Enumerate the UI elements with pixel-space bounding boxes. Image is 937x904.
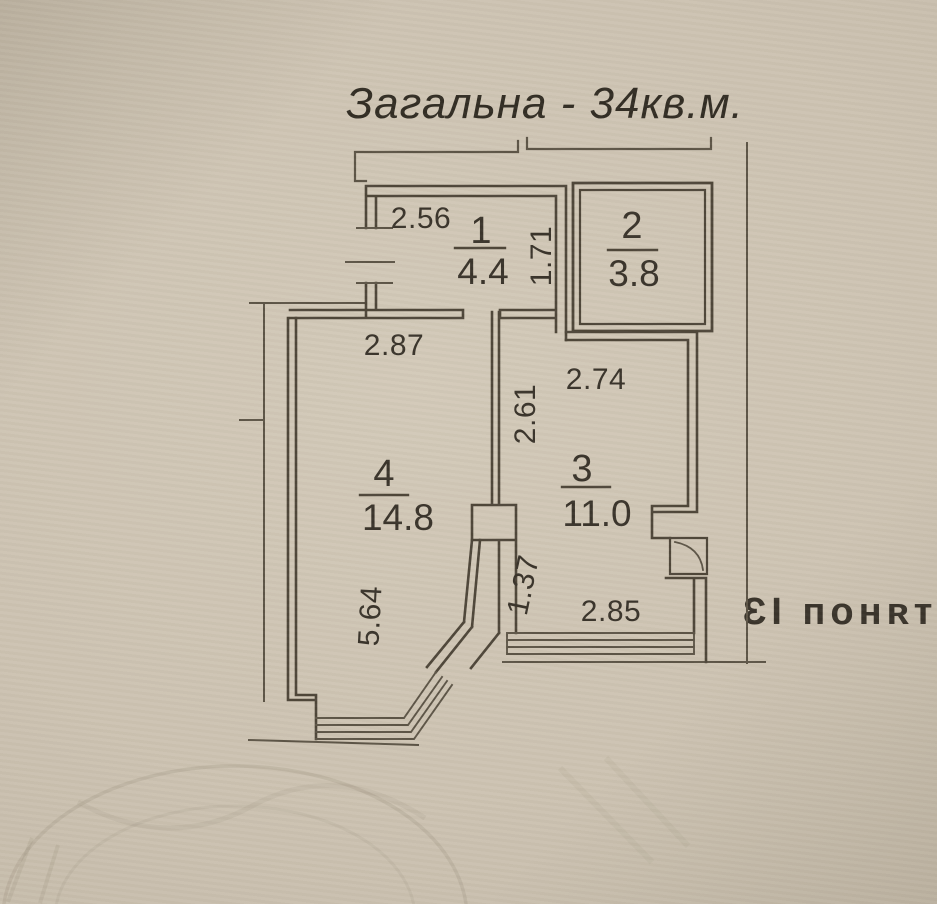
room-3-window — [507, 633, 694, 654]
room-2-number: 2 — [621, 205, 642, 247]
entrance-door-marks — [346, 228, 394, 283]
room-3-number: 3 — [571, 448, 592, 490]
dim-hall-width: 2.56 — [391, 202, 451, 235]
dim-living-depth: 5.64 — [352, 585, 388, 647]
dim-bedroom-width: 2.74 — [566, 363, 626, 396]
room-4-bay-window — [316, 672, 452, 739]
room-3-area: 11.0 — [562, 493, 631, 534]
dim-bedroom-wall-lower: 1.37 — [501, 552, 546, 618]
vent-duct-symbol — [670, 538, 707, 574]
dim-living-width: 2.87 — [364, 329, 424, 362]
show-through-text: стяноп ІЗ — [738, 591, 937, 633]
room-1-area: 4.4 — [457, 251, 508, 292]
svg-text:стяноп ІЗ: стяноп ІЗ — [738, 591, 937, 633]
dim-bedroom-wall-upper: 2.61 — [509, 384, 542, 444]
stamp-watermark — [3, 758, 688, 904]
plan-title: Загальна - 34кв.м. — [346, 79, 744, 128]
room-4-area: 14.8 — [362, 497, 434, 538]
floor-plan-svg: стяноп ІЗ Загальна - 34кв.м. 2.56 1 4.4 — [0, 0, 937, 904]
dim-hall-depth: 1.71 — [525, 226, 558, 286]
dimension-lines — [355, 138, 711, 181]
room-4-number: 4 — [373, 453, 394, 495]
room-1-number: 1 — [470, 210, 491, 252]
dim-bedroom-window-width: 2.85 — [581, 595, 641, 628]
room-2-area: 3.8 — [608, 253, 659, 294]
scanned-floor-plan: стяноп ІЗ Загальна - 34кв.м. 2.56 1 4.4 — [0, 0, 937, 904]
